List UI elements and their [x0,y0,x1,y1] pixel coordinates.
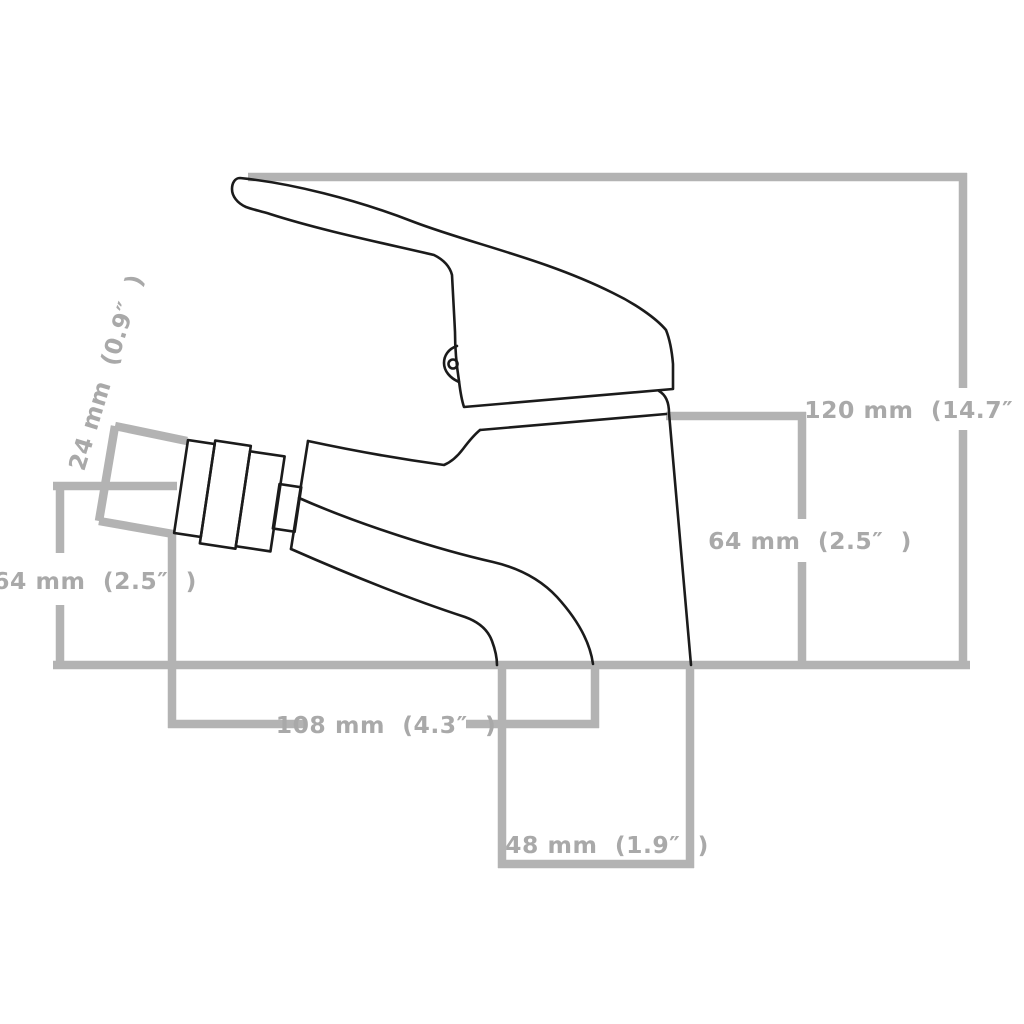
label-base-width: 48 mm (1.9″ ) [505,831,709,859]
column-front-contour [299,498,593,664]
body-collar-edge [480,414,666,430]
label-nozzle-diameter: 24 mm (0.9″ ) [63,271,149,474]
label-total-height: 120 mm (14.7″ ) [804,396,1024,424]
faucet-diagram-svg: 120 mm (14.7″ ) 64 mm (2.5″ ) 64 mm (2.5… [0,0,1024,1024]
dimension-diagram: 120 mm (14.7″ ) 64 mm (2.5″ ) 64 mm (2.5… [0,0,1024,1024]
label-spout-height-right: 64 mm (2.5″ ) [708,527,912,555]
dim-line-nozzle-top [115,426,187,441]
body-right-edge [659,391,691,665]
spout-arm-top-edge [308,430,480,465]
dim-line-nozzle-side [99,426,115,521]
label-spout-height-left: 64 mm (2.5″ ) [0,567,197,595]
column-left-contour [291,549,497,665]
faucet-handle [232,178,673,407]
dim-reach-lines [168,534,599,728]
sprayer-nozzle [173,437,306,557]
dim-nozzle-diameter-lines [99,426,187,534]
faucet-outline [173,178,691,665]
dimension-labels: 120 mm (14.7″ ) 64 mm (2.5″ ) 64 mm (2.5… [0,271,1024,859]
label-reach: 108 mm (4.3″ ) [276,711,497,739]
dimension-lines [53,173,970,868]
nozzle-neck [273,484,301,532]
dim-line-nozzle-bottom [99,521,173,534]
